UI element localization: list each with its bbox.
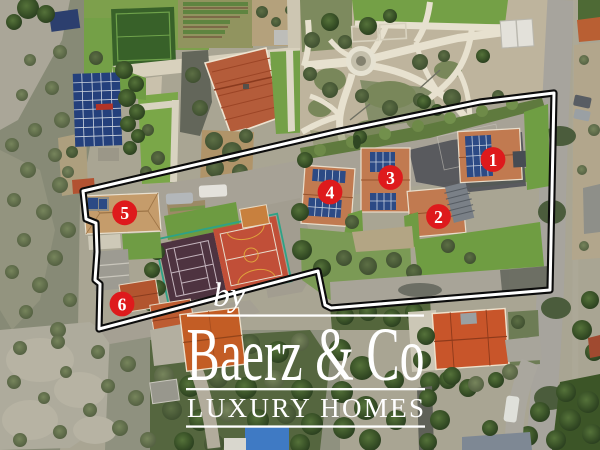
svg-text:5: 5 [120,203,129,223]
svg-text:6: 6 [118,294,127,314]
svg-text:1: 1 [489,150,498,170]
svg-text:3: 3 [386,168,395,188]
svg-text:2: 2 [434,207,443,227]
svg-text:by: by [213,277,246,314]
svg-text:Baerz & Co: Baerz & Co [187,313,425,397]
svg-text:4: 4 [326,182,335,202]
